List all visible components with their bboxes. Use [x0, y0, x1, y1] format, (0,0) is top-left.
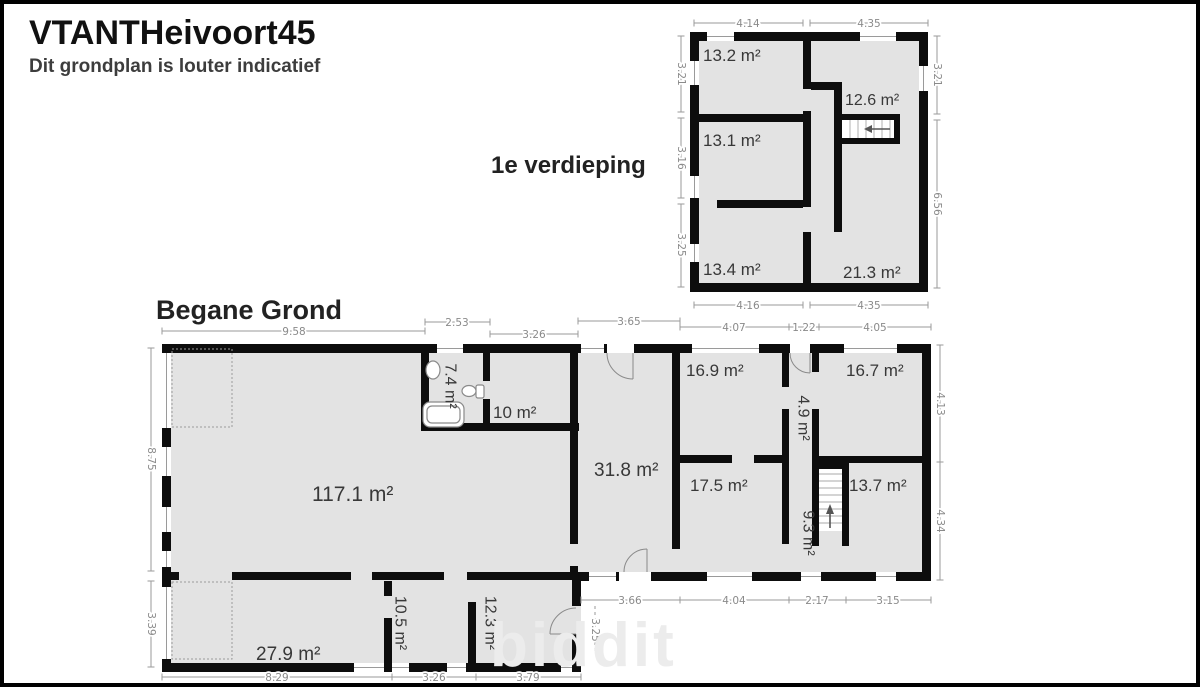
dimension-label: 3.66 [618, 595, 642, 607]
dimension-label: 4.13 [934, 392, 946, 415]
room-label: 17.5 m² [690, 476, 748, 495]
dimension-label: 4.05 [863, 322, 886, 334]
room-label: 12.6 m² [845, 92, 900, 109]
room-label: 13.2 m² [703, 46, 761, 65]
dimension-label: 3.25 [675, 233, 687, 256]
dimension-label: 2.53 [445, 317, 468, 329]
room-label: 13.1 m² [703, 131, 761, 150]
room-label: 13.4 m² [703, 260, 761, 279]
room-label: 31.8 m² [594, 460, 658, 481]
dimension-label: 3.26 [522, 329, 546, 341]
stairs-icon [819, 469, 842, 531]
dimension-label: 3.21 [931, 63, 943, 86]
floorplan-page: VTANTHeivoort45 Dit grondplan is louter … [0, 0, 1200, 687]
dimension-label: 3.15 [876, 595, 899, 607]
first-floor-plan: 13.2 m² 13.1 m² 13.4 m² 12.6 m² 21.3 m² … [675, 18, 943, 312]
dimension-label: 8.29 [265, 672, 288, 684]
dimension-label: 3.16 [675, 146, 687, 170]
dimension-label: 4.35 [857, 300, 880, 312]
room-label: 21.3 m² [843, 263, 901, 282]
room-label: 4.9 m² [795, 395, 812, 441]
dimension-label: 4.34 [934, 509, 946, 533]
watermark-text: biddit [490, 611, 677, 680]
dimension-label: 6.56 [931, 192, 943, 216]
dimension-label: 4.16 [736, 300, 760, 312]
room-label: 13.7 m² [849, 476, 907, 495]
room-label: 7.4 m² [442, 363, 459, 409]
dimension-label: 4.14 [736, 18, 760, 30]
dimension-label: 4.35 [857, 18, 880, 30]
room-label: 27.9 m² [256, 644, 320, 665]
stairs-icon [842, 120, 894, 138]
room-label: 10.5 m² [392, 596, 409, 651]
toilet-icon [462, 385, 484, 398]
room-label: 117.1 m² [312, 483, 393, 506]
room-label: 16.9 m² [686, 361, 744, 380]
sink-icon [426, 361, 440, 379]
dimension-label: 4.07 [722, 322, 745, 334]
dimension-label: 2.17 [805, 595, 828, 607]
dimension-label: 4.04 [722, 595, 746, 607]
room-label: 16.7 m² [846, 361, 904, 380]
dimension-label: 8.75 [145, 447, 157, 470]
room-label: 10 m² [493, 403, 537, 422]
room-label: 9.3 m² [800, 510, 817, 556]
floorplan-drawing: 13.2 m² 13.1 m² 13.4 m² 12.6 m² 21.3 m² … [4, 4, 1200, 687]
dimension-label: 9.58 [282, 326, 305, 338]
dimension-label: 1.22 [792, 322, 815, 334]
dimension-label: 3.21 [675, 62, 687, 85]
dimension-label: 3.65 [617, 316, 640, 328]
dimension-label: 3.26 [422, 672, 446, 684]
dimension-label: 3.39 [145, 612, 157, 635]
